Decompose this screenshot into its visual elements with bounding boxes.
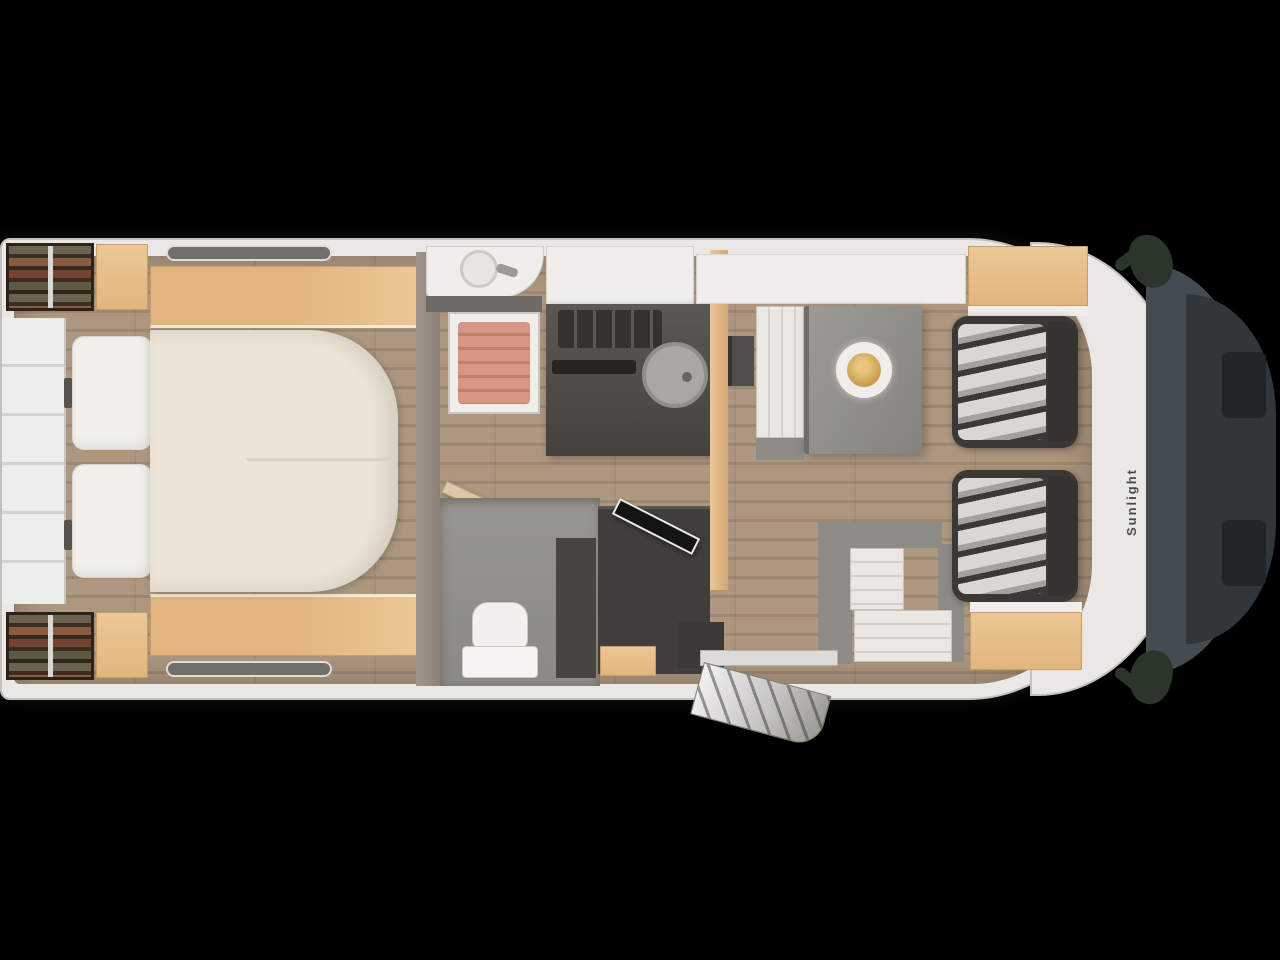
vanity-cabinet [426,296,542,312]
entry-door-sill [700,650,838,666]
dashboard-sill-bottom [970,602,1082,612]
grille-slot-upper [1222,352,1266,418]
gas-hob [558,310,662,348]
toilet-cistern [462,646,538,678]
wardrobe-shelves-top-left [6,243,94,311]
sink-drain [682,372,692,382]
side-bench-cushion-lower [854,610,952,662]
decor-bowl [836,342,892,398]
seat-backrest [1048,476,1078,596]
wardrobe-shelf-divider [48,615,53,677]
side-bench-frame-left [818,522,852,664]
window-bottom-rear [168,663,330,675]
cab-seat-driver [952,316,1078,448]
island-bed-mattress [150,330,398,592]
seat-cushion [958,324,1046,440]
bedside-shelf-top [150,266,418,328]
pillow-right [72,464,152,578]
washbasin-sink [460,250,498,288]
dashboard-trim-bottom [970,612,1082,670]
seat-cushion [958,478,1046,594]
pillow-left [72,336,152,450]
wardrobe-shelves-bottom-left [6,612,94,680]
bedside-shelf-bottom [150,594,418,656]
wardrobe-shelf-divider [48,246,53,308]
rear-wall-cabinet [2,318,66,604]
dashboard-trim-top [968,246,1088,306]
entry-step-cabinet [600,646,656,676]
shower-cubicle [448,312,540,414]
dashboard-sill-top [968,306,1088,316]
front-bench-base [756,436,804,460]
corner-cabinet-top-left [96,244,148,310]
bed-frame-handle-bottom [64,520,72,550]
grille-slot-lower [1222,520,1266,586]
cab-seat-passenger [952,470,1078,602]
duvet-seam [246,458,396,461]
shower-tray [458,322,530,404]
bed-frame-handle-top [64,378,72,408]
kitchen-round-sink [642,342,708,408]
oven-slot [552,360,636,374]
tv-on-partition [728,336,754,386]
dinette-overhead-locker [696,254,966,304]
seat-backrest [1048,322,1078,442]
brand-text: Sunlight [1124,426,1139,536]
window-top-rear [168,247,330,259]
corner-cabinet-bottom-left [96,612,148,678]
toilet-bowl [472,602,528,650]
front-bench-seat [756,306,804,438]
front-bumper [1186,294,1276,644]
side-bench-cushion-upper [850,548,904,610]
decor-bowl-center [847,353,881,387]
bedroom-bathroom-partition [416,252,440,686]
kitchen-overhead-locker [546,246,694,306]
floorplan-stage: Sunlight [0,0,1280,960]
tall-cabinet [556,538,596,678]
